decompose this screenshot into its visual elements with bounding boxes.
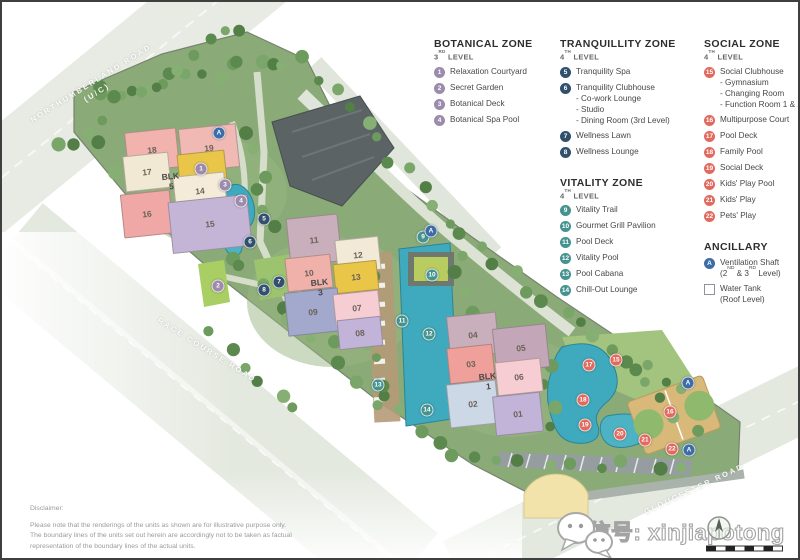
scale-bar — [706, 545, 786, 553]
legend-item-sub: (Roof Level) — [720, 294, 765, 305]
block-label-3: BLK3 — [310, 277, 329, 298]
legend-item-label: Kids' Play — [720, 194, 756, 205]
legend-item-label: Social Clubhouse — [720, 66, 800, 77]
zone-title: SOCIAL ZONE — [704, 38, 800, 50]
legend-item-text: Wellness Lawn — [576, 130, 631, 141]
legend-item-label: Botanical Spa Pool — [450, 114, 519, 125]
map-marker-social-22: 22 — [666, 443, 679, 456]
legend-item-label: Water Tank — [720, 283, 765, 294]
legend-item: 19Social Deck — [704, 162, 800, 174]
disclaimer-title: Disclaimer: — [30, 504, 370, 514]
disclaimer-line: The boundary lines of the units set out … — [30, 531, 370, 541]
map-marker-social-18: 18 — [577, 394, 590, 407]
block-label-1: BLK1 — [478, 371, 497, 392]
legend-marker-icon: 22 — [704, 211, 715, 222]
legend-marker-icon: 7 — [560, 131, 571, 142]
legend-item-label: Tranquility Clubhouse — [576, 82, 670, 93]
legend-item: AVentilation Shaft(2ND & 3RD Level) — [704, 257, 800, 279]
map-marker-social-21: 21 — [639, 434, 652, 447]
legend-item: 4Botanical Spa Pool — [434, 114, 546, 126]
legend-marker-icon: 13 — [560, 269, 571, 280]
legend-item-text: Water Tank(Roof Level) — [720, 283, 765, 305]
legend-item-label: Pool Cabana — [576, 268, 623, 279]
legend-item-sub: (2ND & 3RD Level) — [720, 268, 781, 279]
legend-item: 5Tranquility Spa — [560, 66, 690, 78]
map-marker-ancillary-A: A — [213, 127, 226, 140]
map-marker-social-15: 15 — [610, 354, 623, 367]
legend-marker-icon: 10 — [560, 221, 571, 232]
legend-item-text: Tranquility Clubhouse- Co-work Lounge- S… — [576, 82, 670, 126]
legend-marker-icon: 4 — [434, 115, 445, 126]
zone-level: 4TH LEVEL — [560, 52, 690, 62]
legend-item-sub: - Studio — [576, 104, 670, 115]
legend-column: SOCIAL ZONE4TH LEVEL15Social Clubhouse- … — [704, 38, 800, 324]
legend-marker-icon: 16 — [704, 115, 715, 126]
legend-item-label: Family Pool — [720, 146, 763, 157]
legend-item-label: Tranquility Spa — [576, 66, 630, 77]
legend-item: 22Pets' Play — [704, 210, 800, 222]
zone-title: TRANQUILLITY ZONE — [560, 38, 690, 50]
legend-item-text: Pets' Play — [720, 210, 756, 221]
map-marker-ancillary-A: A — [682, 377, 695, 390]
map-marker-botanical-4: 4 — [235, 195, 248, 208]
map-marker-social-16: 16 — [664, 406, 677, 419]
legend-column: BOTANICAL ZONE3RD LEVEL1Relaxation Court… — [434, 38, 546, 324]
legend-item-label: Relaxation Courtyard — [450, 66, 527, 77]
legend-item-text: Pool Deck — [720, 130, 757, 141]
legend-item: 17Pool Deck — [704, 130, 800, 142]
legend-item-sub: - Co-work Lounge — [576, 93, 670, 104]
legend-item-text: Vitality Pool — [576, 252, 619, 263]
legend-marker-icon: 21 — [704, 195, 715, 206]
legend-marker-icon: 5 — [560, 67, 571, 78]
legend-marker-icon: 8 — [560, 147, 571, 158]
legend-zone-ancillary: ANCILLARYAVentilation Shaft(2ND & 3RD Le… — [704, 241, 800, 309]
legend-item-text: Gourmet Grill Pavilion — [576, 220, 656, 231]
legend-item: 11Pool Deck — [560, 236, 690, 248]
block-label-5: BLK5 — [161, 171, 180, 192]
legend-item-text: Tranquility Spa — [576, 66, 630, 77]
legend-item-label: Multipurpose Court — [720, 114, 789, 125]
compass-icon — [705, 514, 733, 542]
disclaimer-lines: Please note that the renderings of the u… — [30, 521, 370, 552]
legend-marker-icon: 17 — [704, 131, 715, 142]
legend-item-sub: - Gymnasium — [720, 77, 800, 88]
disclaimer-line: representation of the boundary lines of … — [30, 542, 370, 552]
legend-item: 15Social Clubhouse- Gymnasium- Changing … — [704, 66, 800, 110]
legend-item-label: Pool Deck — [720, 130, 757, 141]
legend-item-text: Pool Cabana — [576, 268, 623, 279]
legend-item-label: Pool Deck — [576, 236, 613, 247]
building-unit-01: 01 — [492, 392, 544, 437]
legend-item-label: Botanical Deck — [450, 98, 505, 109]
legend-marker-icon: 2 — [434, 83, 445, 94]
legend-item-sub: - Changing Room — [720, 88, 800, 99]
legend-item-label: Vitality Trail — [576, 204, 618, 215]
legend-item: 18Family Pool — [704, 146, 800, 158]
map-marker-social-19: 19 — [579, 419, 592, 432]
legend-item: 16Multipurpose Court — [704, 114, 800, 126]
legend-marker-icon: 11 — [560, 237, 571, 248]
legend-item-label: Kids' Play Pool — [720, 178, 774, 189]
legend-item-text: Kids' Play Pool — [720, 178, 774, 189]
legend-item-text: Social Clubhouse- Gymnasium- Changing Ro… — [720, 66, 800, 110]
legend-item-label: Vitality Pool — [576, 252, 619, 263]
legend-item-label: Wellness Lawn — [576, 130, 631, 141]
water-tank-square-icon — [704, 284, 715, 295]
map-marker-tranquillity-5: 5 — [258, 213, 271, 226]
building-unit-13: 13 — [333, 260, 380, 294]
legend-item-text: Ventilation Shaft(2ND & 3RD Level) — [720, 257, 781, 279]
legend-zone-botanical: BOTANICAL ZONE3RD LEVEL1Relaxation Court… — [434, 38, 546, 130]
disclaimer: Disclaimer: Please note that the renderi… — [30, 504, 370, 552]
legend-item: 12Vitality Pool — [560, 252, 690, 264]
legend: BOTANICAL ZONE3RD LEVEL1Relaxation Court… — [434, 38, 800, 324]
legend-item-sub: - Dining Room (3rd Level) — [576, 115, 670, 126]
legend-item-text: Kids' Play — [720, 194, 756, 205]
legend-column: TRANQUILLITY ZONE4TH LEVEL5Tranquility S… — [560, 38, 690, 324]
legend-item-text: Botanical Spa Pool — [450, 114, 519, 125]
zone-level: 3RD LEVEL — [434, 52, 546, 62]
legend-item-label: Wellness Lounge — [576, 146, 639, 157]
legend-item-text: Social Deck — [720, 162, 763, 173]
building-unit-16: 16 — [120, 190, 174, 239]
legend-item: 8Wellness Lounge — [560, 146, 690, 158]
map-marker-tranquillity-7: 7 — [273, 276, 286, 289]
legend-marker-icon: 9 — [560, 205, 571, 216]
legend-marker-icon: 20 — [704, 179, 715, 190]
legend-marker-icon: 14 — [560, 285, 571, 296]
legend-item: Water Tank(Roof Level) — [704, 283, 800, 305]
legend-marker-icon: 12 — [560, 253, 571, 264]
legend-zone-vitality: VITALITY ZONE4TH LEVEL9Vitality Trail10G… — [560, 177, 690, 301]
building-unit-08: 08 — [337, 316, 384, 350]
legend-marker-icon: 6 — [560, 83, 571, 94]
legend-item-text: Multipurpose Court — [720, 114, 789, 125]
map-marker-botanical-3: 3 — [219, 179, 232, 192]
legend-item: 13Pool Cabana — [560, 268, 690, 280]
legend-item: 10Gourmet Grill Pavilion — [560, 220, 690, 232]
legend-item: 9Vitality Trail — [560, 204, 690, 216]
legend-item-text: Pool Deck — [576, 236, 613, 247]
legend-zone-social: SOCIAL ZONE4TH LEVEL15Social Clubhouse- … — [704, 38, 800, 226]
legend-item-sub: - Function Room 1 & 2 — [720, 99, 800, 110]
map-marker-tranquillity-8: 8 — [258, 284, 271, 297]
legend-marker-icon: 3 — [434, 99, 445, 110]
legend-marker-icon: 19 — [704, 163, 715, 174]
legend-item-label: Chill-Out Lounge — [576, 284, 637, 295]
legend-item: 3Botanical Deck — [434, 98, 546, 110]
legend-item-label: Social Deck — [720, 162, 763, 173]
legend-item-text: Relaxation Courtyard — [450, 66, 527, 77]
disclaimer-line: Please note that the renderings of the u… — [30, 521, 370, 531]
zone-level: 4TH LEVEL — [560, 191, 690, 201]
legend-item-label: Secret Garden — [450, 82, 503, 93]
legend-item-text: Botanical Deck — [450, 98, 505, 109]
legend-marker-icon: 18 — [704, 147, 715, 158]
legend-item: 7Wellness Lawn — [560, 130, 690, 142]
legend-item: 20Kids' Play Pool — [704, 178, 800, 190]
legend-zone-tranquillity: TRANQUILLITY ZONE4TH LEVEL5Tranquility S… — [560, 38, 690, 162]
legend-item: 1Relaxation Courtyard — [434, 66, 546, 78]
legend-item: 6Tranquility Clubhouse- Co-work Lounge- … — [560, 82, 690, 126]
site-plan-page: 1819172016141511101213090708040503060201… — [0, 0, 800, 560]
zone-level: 4TH LEVEL — [704, 52, 800, 62]
legend-item-text: Wellness Lounge — [576, 146, 639, 157]
building-unit-06: 06 — [494, 358, 543, 397]
legend-marker-icon: 15 — [704, 67, 715, 78]
legend-item-text: Family Pool — [720, 146, 763, 157]
map-marker-social-20: 20 — [614, 428, 627, 441]
legend-item-text: Secret Garden — [450, 82, 503, 93]
legend-item-text: Vitality Trail — [576, 204, 618, 215]
map-marker-vitality-14: 14 — [421, 404, 434, 417]
zone-title: ANCILLARY — [704, 241, 800, 253]
legend-item: 21Kids' Play — [704, 194, 800, 206]
map-marker-social-17: 17 — [583, 359, 596, 372]
map-marker-vitality-12: 12 — [423, 328, 436, 341]
map-marker-tranquillity-6: 6 — [244, 236, 257, 249]
legend-marker-icon: 1 — [434, 67, 445, 78]
map-marker-botanical-1: 1 — [195, 163, 208, 176]
road-label: NORTHUMBERLAND ROAD(U/C) — [28, 41, 159, 135]
map-marker-ancillary-A: A — [683, 444, 696, 457]
zone-title: VITALITY ZONE — [560, 177, 690, 189]
legend-item: 14Chill-Out Lounge — [560, 284, 690, 296]
road-label: RACE COURSE ROAD — [155, 315, 258, 385]
map-marker-botanical-2: 2 — [212, 280, 225, 293]
legend-item: 2Secret Garden — [434, 82, 546, 94]
legend-item-label: Pets' Play — [720, 210, 756, 221]
wechat-bubbles-icon — [554, 506, 618, 558]
map-marker-vitality-11: 11 — [396, 315, 409, 328]
legend-item-text: Chill-Out Lounge — [576, 284, 637, 295]
zone-title: BOTANICAL ZONE — [434, 38, 546, 50]
legend-marker-icon: A — [704, 258, 715, 269]
map-marker-vitality-13: 13 — [372, 379, 385, 392]
legend-item-label: Gourmet Grill Pavilion — [576, 220, 656, 231]
